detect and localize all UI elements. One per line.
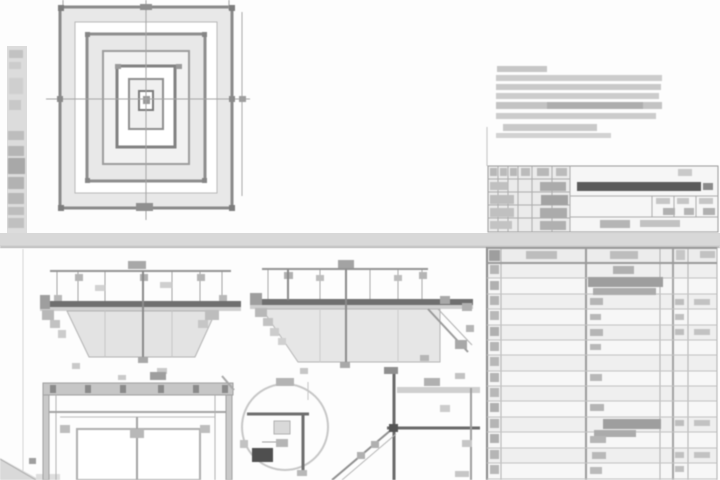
notes [496, 66, 662, 138]
drawing-page [0, 0, 720, 480]
plan_view [46, 0, 250, 220]
node_detail [240, 378, 328, 476]
drawing-layer [0, 0, 720, 480]
title_block [488, 166, 718, 232]
spec_table [487, 247, 717, 480]
frame_detail [29, 372, 234, 480]
margin_stamp [8, 50, 25, 228]
brace_detail [332, 367, 480, 480]
elevation_a [40, 261, 241, 374]
elevation_b [250, 260, 474, 374]
